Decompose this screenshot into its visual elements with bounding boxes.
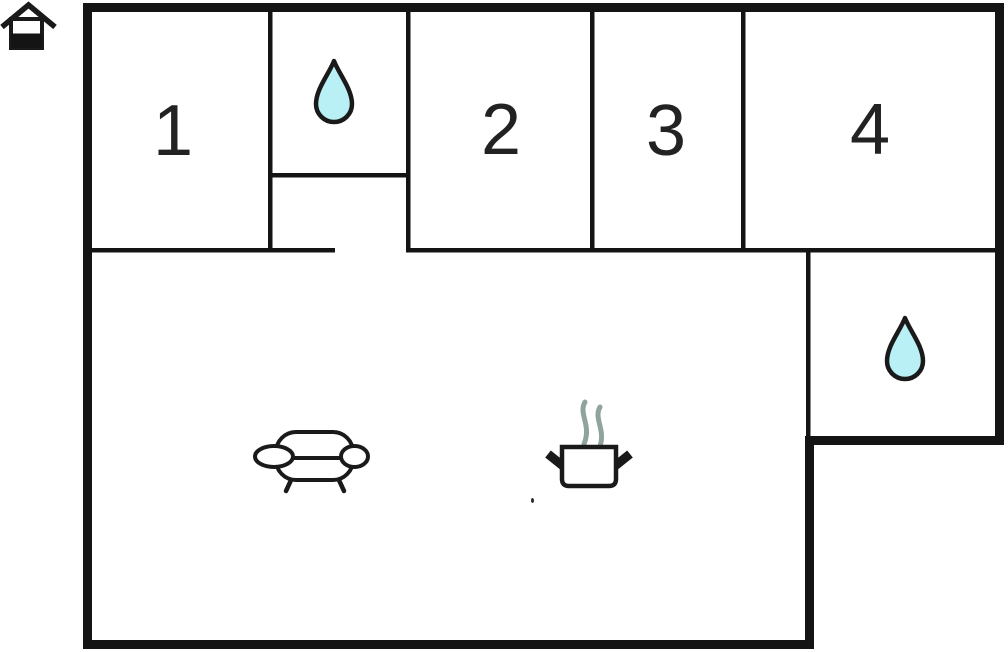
wall-room2-room3-divider xyxy=(590,11,595,251)
room-2-label: 2 xyxy=(481,90,521,170)
room-3-label: 3 xyxy=(646,91,686,171)
sofa-right-armrest xyxy=(341,446,368,467)
wall-outer-step xyxy=(805,436,814,649)
wall-outer-bathroom-bottom xyxy=(805,436,1004,445)
steam-line-right xyxy=(598,407,602,449)
steam-line-left xyxy=(583,402,587,444)
cooking-pot-icon xyxy=(548,402,630,486)
wall-corridor-left-segment xyxy=(85,248,335,253)
water-drop-shape xyxy=(316,61,352,122)
stray-mark xyxy=(531,498,534,503)
floor-plan-svg: 1 2 3 4 xyxy=(0,0,1008,652)
wall-room3-room4-divider xyxy=(741,11,746,251)
wall-corridor-right-segment xyxy=(406,248,1000,253)
sofa-icon xyxy=(255,432,368,491)
room-4-label: 4 xyxy=(850,90,890,170)
wall-outer-left xyxy=(83,3,92,649)
wall-top-bathroom-bottom xyxy=(268,173,410,178)
water-drop-icon xyxy=(316,61,352,122)
pot-body xyxy=(562,447,616,486)
wall-outer-bottom xyxy=(83,640,814,649)
house-icon xyxy=(2,5,55,48)
floor-plan: 1 2 3 4 xyxy=(0,0,1008,652)
room-labels: 1 2 3 4 xyxy=(153,90,890,171)
water-drop-shape xyxy=(887,318,923,379)
wall-room2-left xyxy=(406,11,411,251)
room-1-label: 1 xyxy=(153,91,193,171)
wall-outer-right xyxy=(995,3,1004,445)
wall-room1-right xyxy=(268,11,273,251)
house-icon-body-fill xyxy=(11,34,42,49)
water-drop-icon xyxy=(887,318,923,379)
wall-right-bathroom-left xyxy=(806,250,811,440)
wall-outer-top xyxy=(83,3,1004,12)
sofa-left-armrest xyxy=(255,446,293,467)
